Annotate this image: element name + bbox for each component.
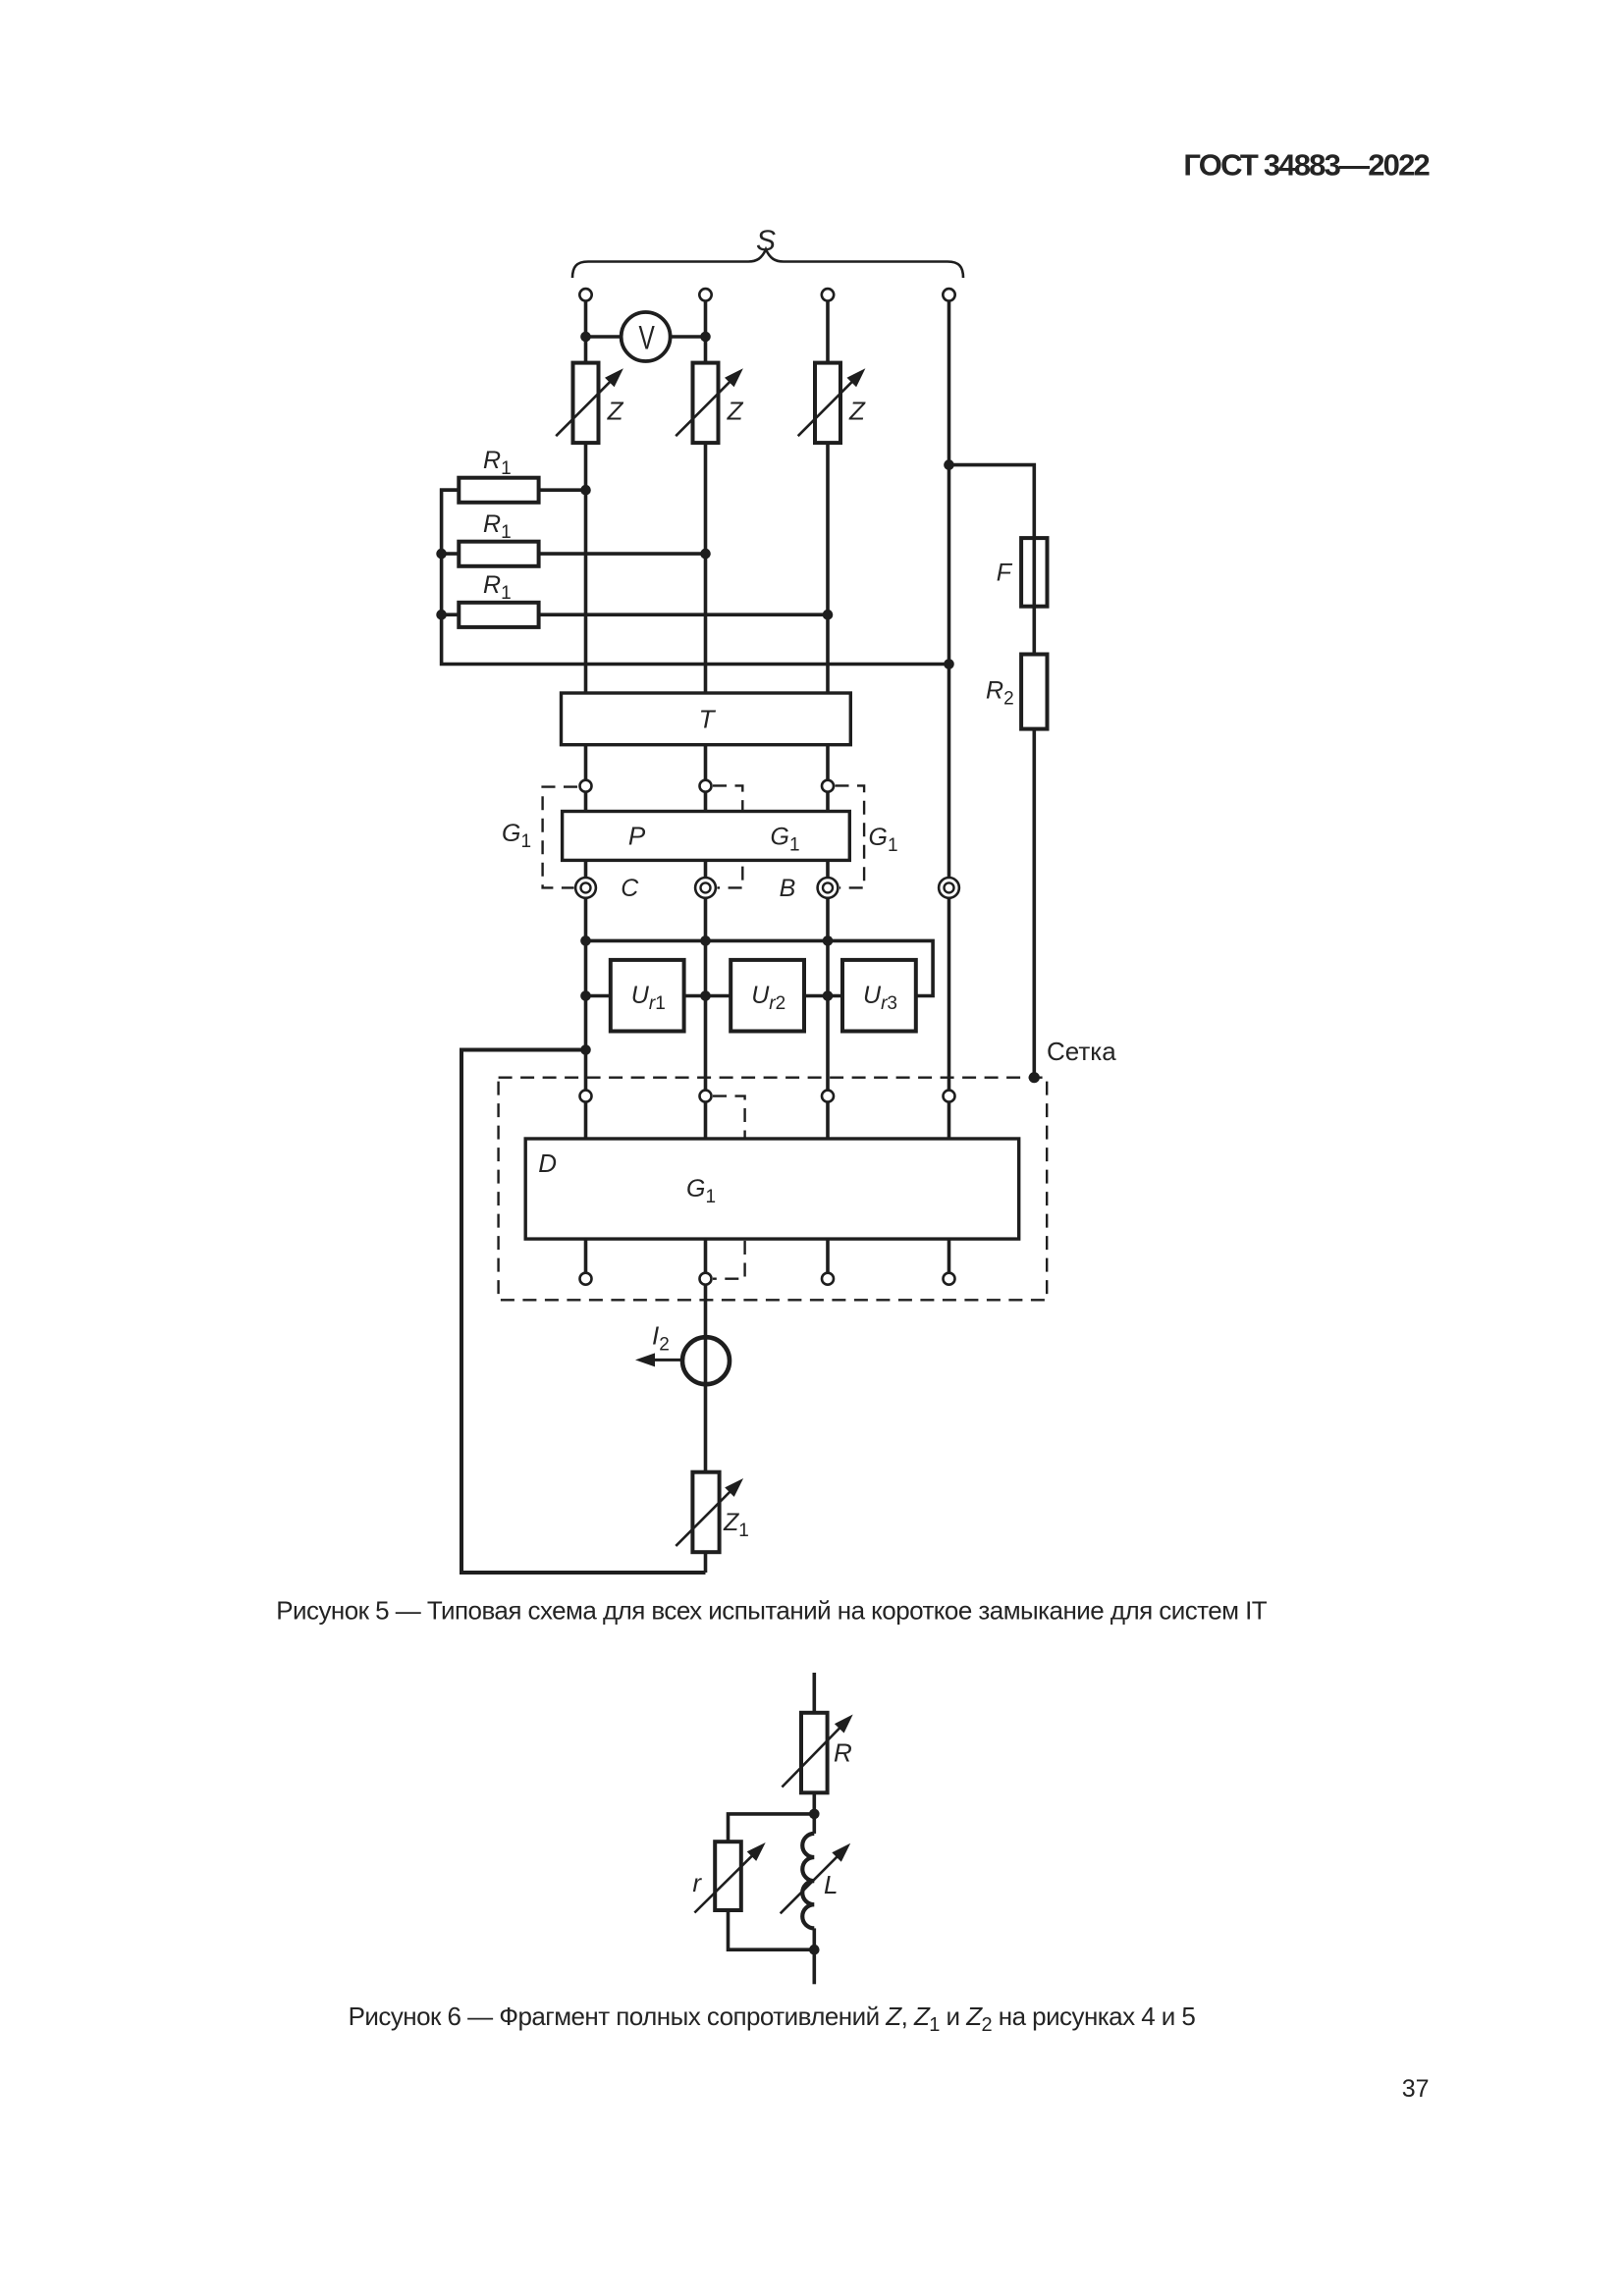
svg-text:Z: Z	[607, 396, 624, 425]
svg-text:Рисунок 5 — Типовая схема для: Рисунок 5 — Типовая схема для всех испыт…	[276, 1596, 1268, 1626]
svg-text:Z: Z	[727, 396, 744, 425]
svg-text:Z1: Z1	[723, 1509, 749, 1541]
svg-text:F: F	[997, 559, 1013, 586]
svg-text:R1: R1	[483, 571, 512, 604]
svg-text:D: D	[538, 1148, 557, 1178]
svg-text:R1: R1	[483, 510, 512, 543]
svg-text:G1: G1	[869, 824, 898, 856]
svg-text:B: B	[780, 875, 796, 902]
svg-text:37: 37	[1402, 2075, 1430, 2103]
svg-text:Сетка: Сетка	[1047, 1037, 1116, 1066]
svg-text:C: C	[621, 875, 639, 902]
svg-text:I2: I2	[652, 1321, 670, 1356]
svg-text:S: S	[756, 225, 776, 257]
svg-text:V: V	[638, 320, 655, 357]
svg-text:L: L	[824, 1870, 838, 1899]
svg-text:Z: Z	[848, 396, 866, 425]
svg-text:P: P	[628, 821, 646, 850]
svg-text:ГОСТ 34883—2022: ГОСТ 34883—2022	[1183, 148, 1429, 183]
svg-text:r: r	[692, 1868, 702, 1897]
svg-text:Рисунок 6 — Фрагмент полных со: Рисунок 6 — Фрагмент полных сопротивлени…	[349, 2002, 1196, 2036]
svg-text:R1: R1	[483, 447, 512, 479]
svg-text:R: R	[834, 1737, 852, 1767]
svg-text:T: T	[699, 705, 717, 734]
svg-text:R2: R2	[986, 676, 1014, 709]
svg-text:G1: G1	[502, 820, 531, 852]
